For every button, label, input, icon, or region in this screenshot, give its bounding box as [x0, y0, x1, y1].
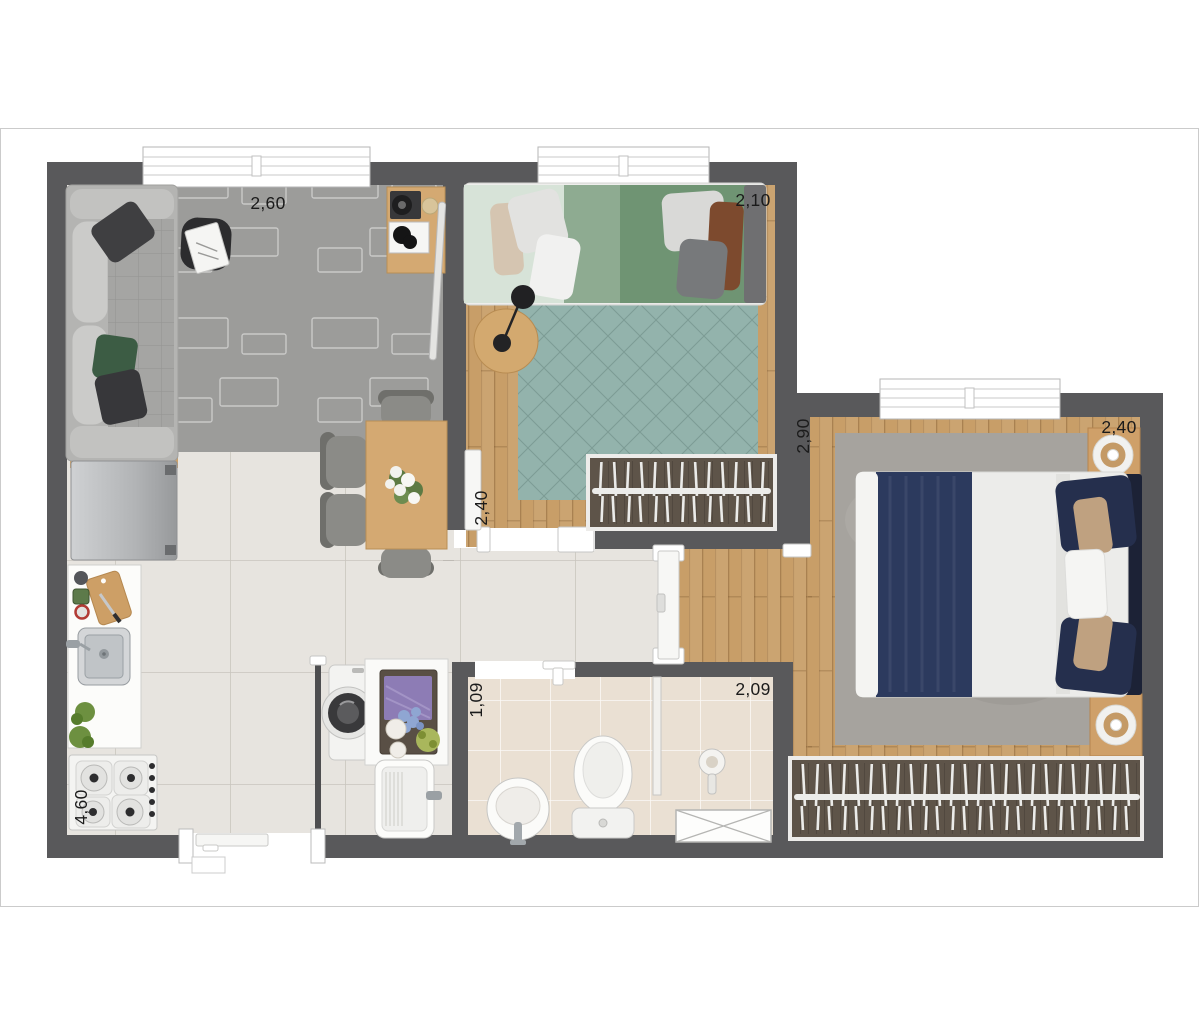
floor-lamp-head — [511, 285, 535, 309]
jar — [390, 742, 406, 758]
pillow — [1064, 549, 1108, 619]
wardrobe-rail — [794, 794, 1140, 800]
bedroom2-bed — [856, 472, 1142, 697]
dim-living-width: 2,60 — [250, 193, 285, 213]
toilet — [572, 736, 634, 838]
fridge — [71, 461, 177, 560]
tank-faucet — [426, 791, 442, 800]
laundry-partition-wall — [315, 662, 321, 835]
faucet — [66, 640, 80, 648]
herb-pot — [73, 589, 89, 604]
bedroom1-bed — [464, 183, 766, 305]
dining-chair — [320, 432, 368, 490]
dining-chair — [378, 548, 434, 578]
bedroom2-nightstand-bottom — [1090, 694, 1142, 756]
jar — [386, 719, 406, 739]
sofa — [66, 185, 178, 468]
pillow — [676, 238, 729, 300]
laundry-partition-cap — [310, 656, 326, 665]
laundry-tank — [375, 760, 442, 838]
bedroom2-wardrobe — [790, 758, 1142, 839]
coffee-stool — [180, 217, 233, 274]
laundry-shelf — [365, 659, 448, 765]
entrance-door — [179, 829, 325, 873]
window-bedroom2 — [880, 379, 1060, 419]
floor-plan-page: 2,60 2,10 2,40 2,90 2,40 1,09 2,09 4,60 — [0, 0, 1200, 1036]
dining-chair — [320, 492, 368, 548]
dim-bedroom1-width: 2,10 — [735, 190, 770, 210]
kitchen-counter — [66, 565, 141, 748]
jar — [76, 606, 89, 619]
dim-bedroom2-width: 2,40 — [1101, 417, 1136, 437]
plant-green — [416, 728, 440, 752]
jar — [74, 571, 88, 585]
hall-sliding-door — [653, 545, 684, 664]
dim-bedroom1-depth: 2,40 — [471, 490, 491, 525]
floor-plan-svg: 2,60 2,10 2,40 2,90 2,40 1,09 2,09 4,60 — [0, 0, 1200, 1036]
wardrobe-rail — [592, 488, 771, 494]
window-living — [143, 147, 370, 187]
dim-bathroom-depth: 1,09 — [466, 682, 486, 717]
dim-kitchen-depth: 4,60 — [71, 789, 91, 824]
bedroom1-wardrobe — [588, 456, 775, 529]
window-bedroom1 — [538, 147, 709, 187]
shower-partition — [653, 677, 661, 795]
dim-bathroom-width: 2,09 — [735, 679, 770, 699]
bedroom2-door-jamb — [783, 544, 811, 557]
shower-box-marker — [676, 810, 771, 842]
dim-bedroom2-depth: 2,90 — [793, 418, 813, 453]
